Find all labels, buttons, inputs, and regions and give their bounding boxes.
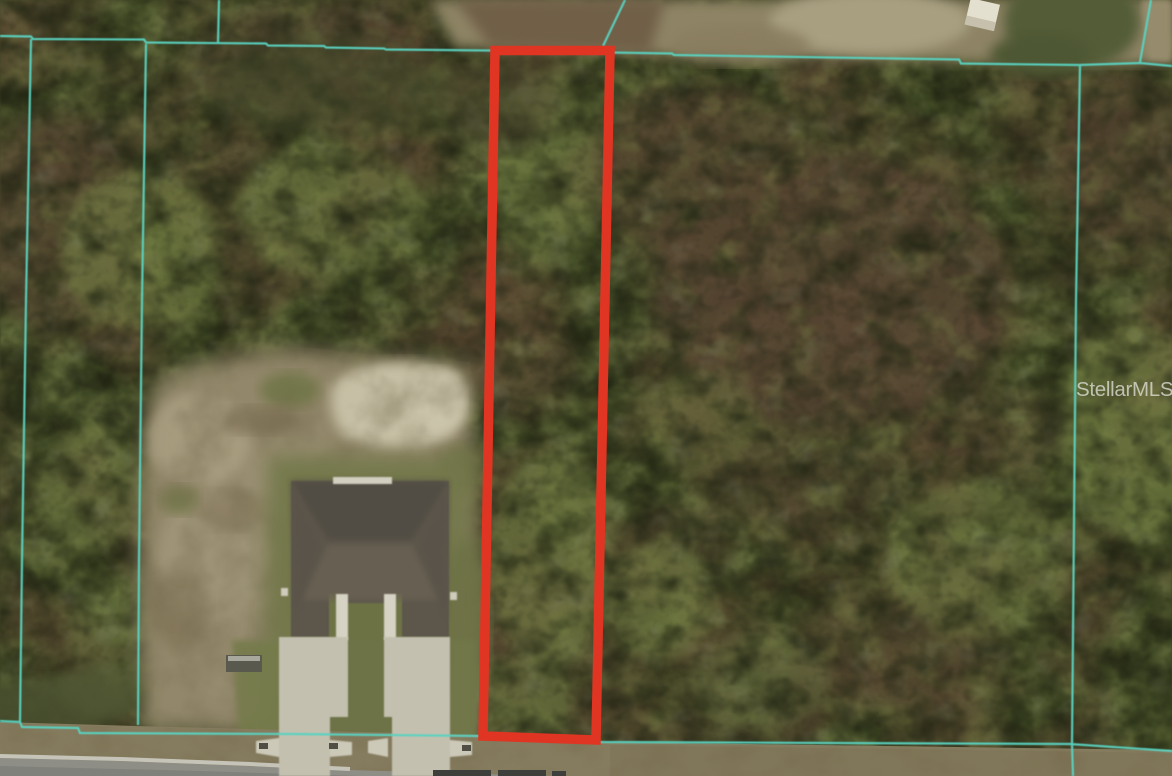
- svg-text:StellarMLS: StellarMLS: [1076, 378, 1172, 401]
